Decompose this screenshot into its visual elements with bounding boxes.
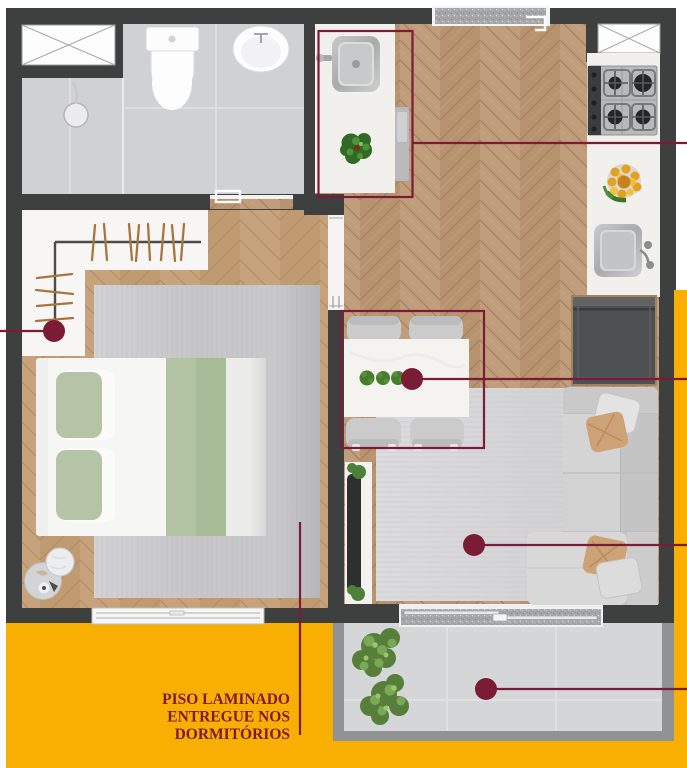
svg-text:PISO LAMINADO: PISO LAMINADO [162, 691, 290, 708]
svg-text:ENTREGUE NOS: ENTREGUE NOS [167, 709, 290, 726]
svg-text:DORMITÓRIOS: DORMITÓRIOS [175, 726, 290, 743]
